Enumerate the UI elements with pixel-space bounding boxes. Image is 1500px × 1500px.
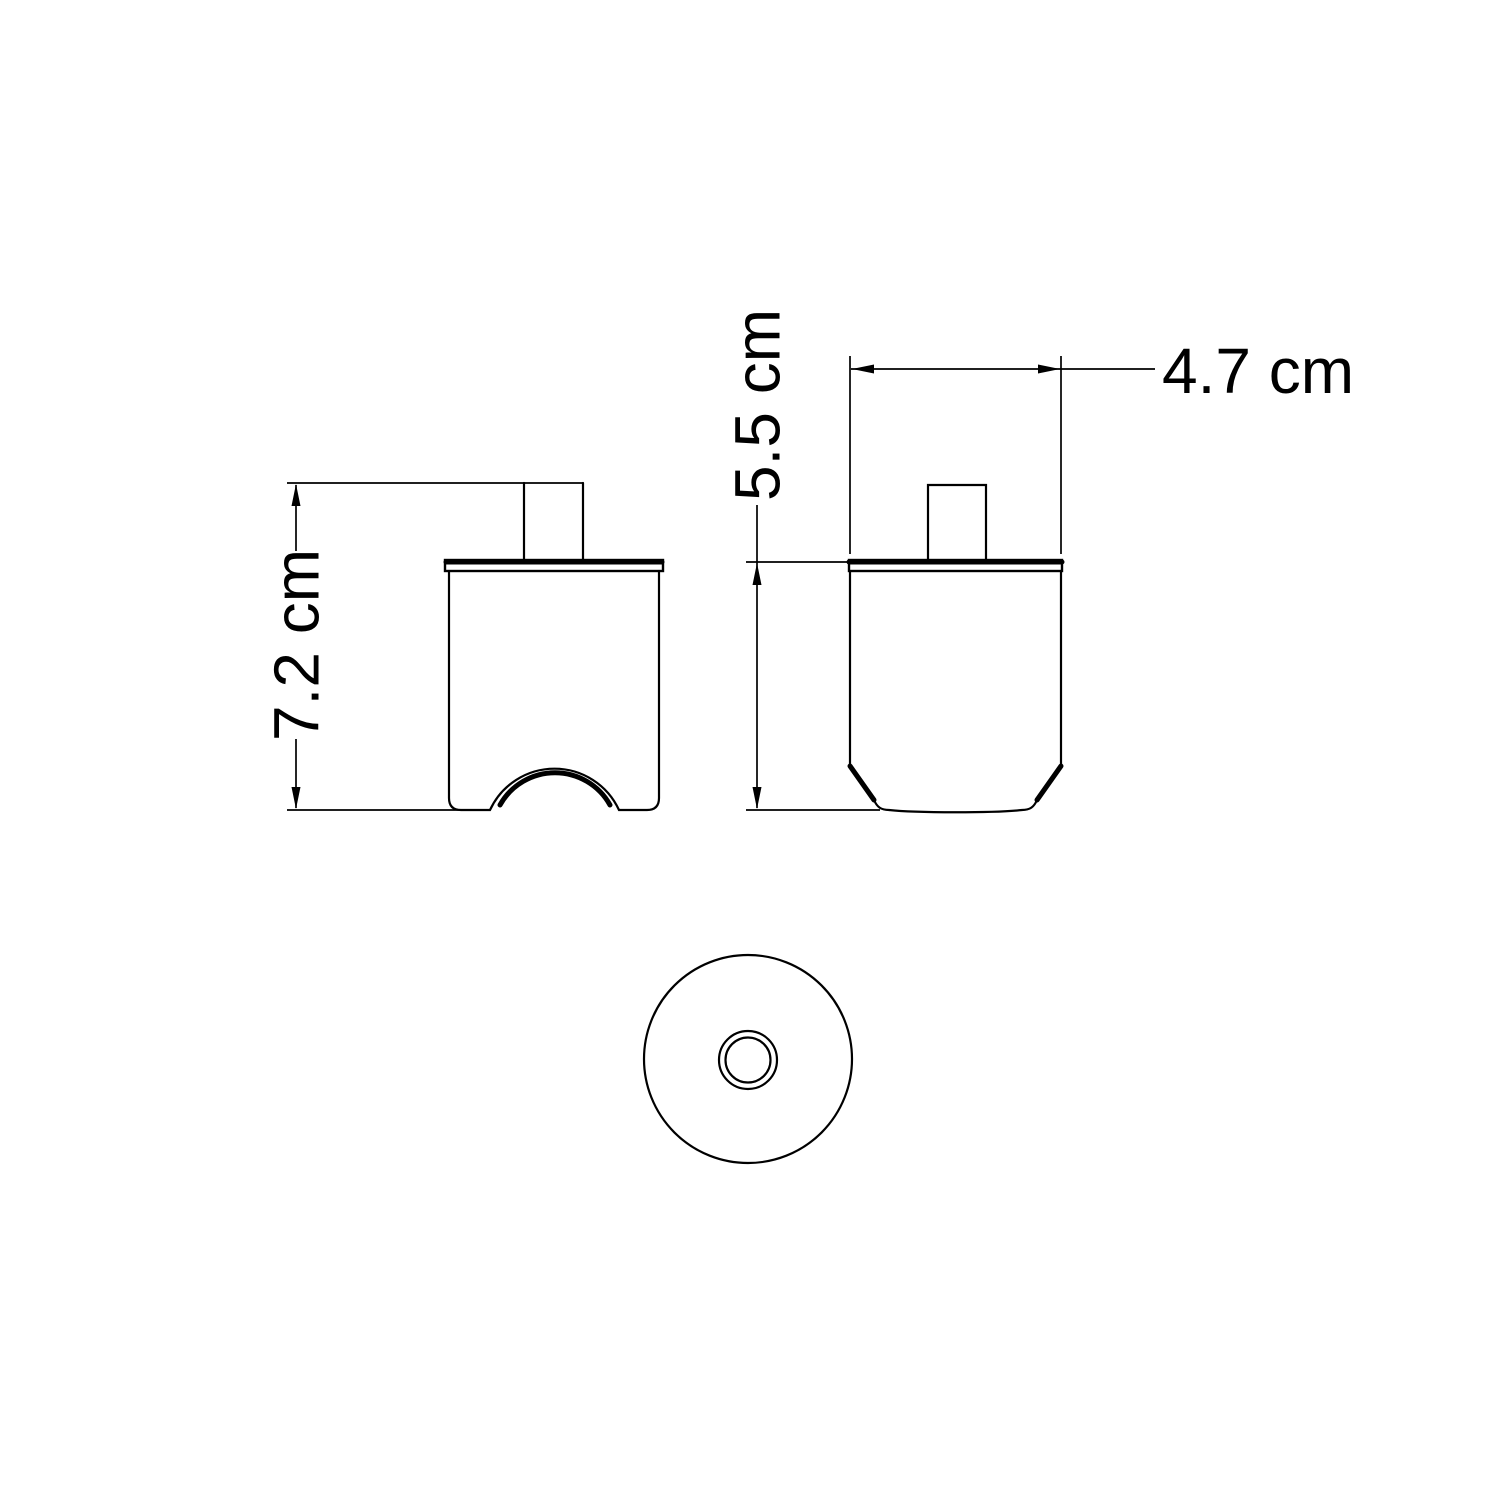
dim-label-side-height: 5.5 cm — [721, 309, 793, 501]
dim-7-2-down-arrowhead-icon — [292, 787, 301, 809]
dimension-side-width: 4.7 cm — [850, 335, 1354, 554]
technical-drawing-page: 7.2 cm 5.5 cm 4.7 cm — [0, 0, 1500, 1500]
dim-7-2-up-arrowhead-icon — [292, 484, 301, 506]
technical-drawing-canvas: 7.2 cm 5.5 cm 4.7 cm — [0, 0, 1500, 1500]
bottom-view-hole-inner-ring — [726, 1038, 771, 1083]
bottom-view-outer-circle — [644, 955, 852, 1163]
dim-label-side-width: 4.7 cm — [1162, 335, 1354, 407]
dim-5-5-down-arrowhead-icon — [753, 787, 762, 809]
dim-label-front-height: 7.2 cm — [260, 549, 332, 741]
side-view — [849, 485, 1062, 812]
dim-4-7-left-arrowhead-icon — [852, 365, 874, 374]
side-right-chamfer — [1037, 766, 1061, 800]
dim-4-7-right-arrowhead-icon — [1038, 365, 1060, 374]
side-left-chamfer — [850, 766, 874, 800]
side-body-bottom-edge — [874, 800, 1037, 812]
front-view — [445, 483, 663, 810]
dimension-front-height: 7.2 cm — [260, 483, 583, 810]
front-notch-inner-arc — [500, 773, 610, 805]
dim-5-5-up-arrowhead-icon — [753, 563, 762, 585]
side-stem-outline — [928, 485, 986, 561]
bottom-view — [644, 955, 852, 1163]
bottom-view-hole-outer-ring — [719, 1031, 777, 1089]
